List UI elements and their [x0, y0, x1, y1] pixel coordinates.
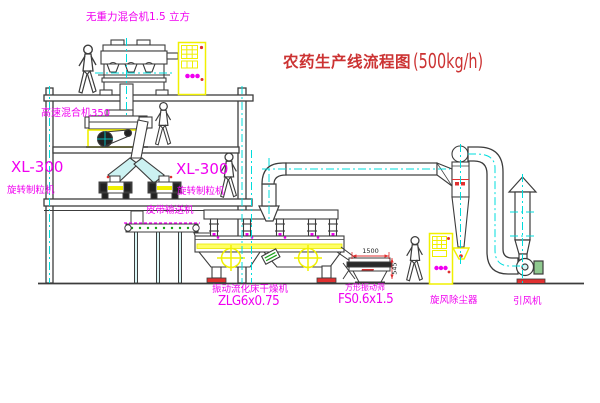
vibrating-sieve-drawing [347, 258, 392, 283]
dimension-sieve-height: 545 [390, 258, 398, 279]
dimension-width-text: 1500 [362, 247, 379, 255]
dimension-height-text: 545 [391, 262, 399, 274]
label-gravity-mixer: 无重力混合机1.5 立方 [86, 12, 190, 23]
dryer-spring-posts [209, 219, 338, 236]
label-xl300-left: XL-300 [11, 160, 63, 175]
label-fan: 引风机 [513, 297, 542, 307]
person-figure-1 [79, 45, 96, 93]
label-belt-conveyor: 皮带输送机 [146, 206, 194, 216]
label-sieve-name: 方形振动筛 [345, 284, 385, 292]
fan-drawing [517, 259, 546, 284]
control-cabinet-top [179, 43, 206, 95]
fluid-bed-dryer-drawing [195, 210, 357, 283]
label-granulator-mid: 旋转制粒机 [177, 187, 225, 197]
label-xl300-mid: XL-300 [176, 162, 228, 177]
label-sieve-model: FS0.6x1.5 [338, 293, 393, 306]
label-dryer-model: ZLG6x0.75 [218, 295, 279, 308]
cabinet-indicator-lights [434, 266, 447, 270]
control-cabinet-bottom [430, 234, 453, 285]
title-chinese: 农药生产线流程图 [283, 50, 411, 72]
slab-drop-chute [131, 211, 143, 224]
diagram-title: 农药生产线流程图 (500kg/h) [283, 49, 511, 73]
label-granulator-left: 旋转制粒机 [7, 186, 55, 196]
granulator-left-drawing [99, 176, 132, 199]
diagram-canvas: 1500 545 [0, 0, 600, 403]
person-figure-4 [407, 237, 423, 281]
exhaust-pipe [468, 147, 518, 274]
building-top-slab [44, 95, 253, 101]
person-figure-2 [156, 103, 171, 145]
label-high-speed-mixer: 高速混合机350 [41, 109, 110, 119]
title-capacity: (500kg/h) [413, 49, 483, 73]
dimension-sieve-width: 1500 [352, 247, 389, 259]
label-cyclone: 旋风除尘器 [430, 296, 478, 306]
fan-motor [534, 261, 543, 274]
building-mid-slab [53, 147, 239, 153]
cabinet-indicator-lights [185, 74, 200, 79]
